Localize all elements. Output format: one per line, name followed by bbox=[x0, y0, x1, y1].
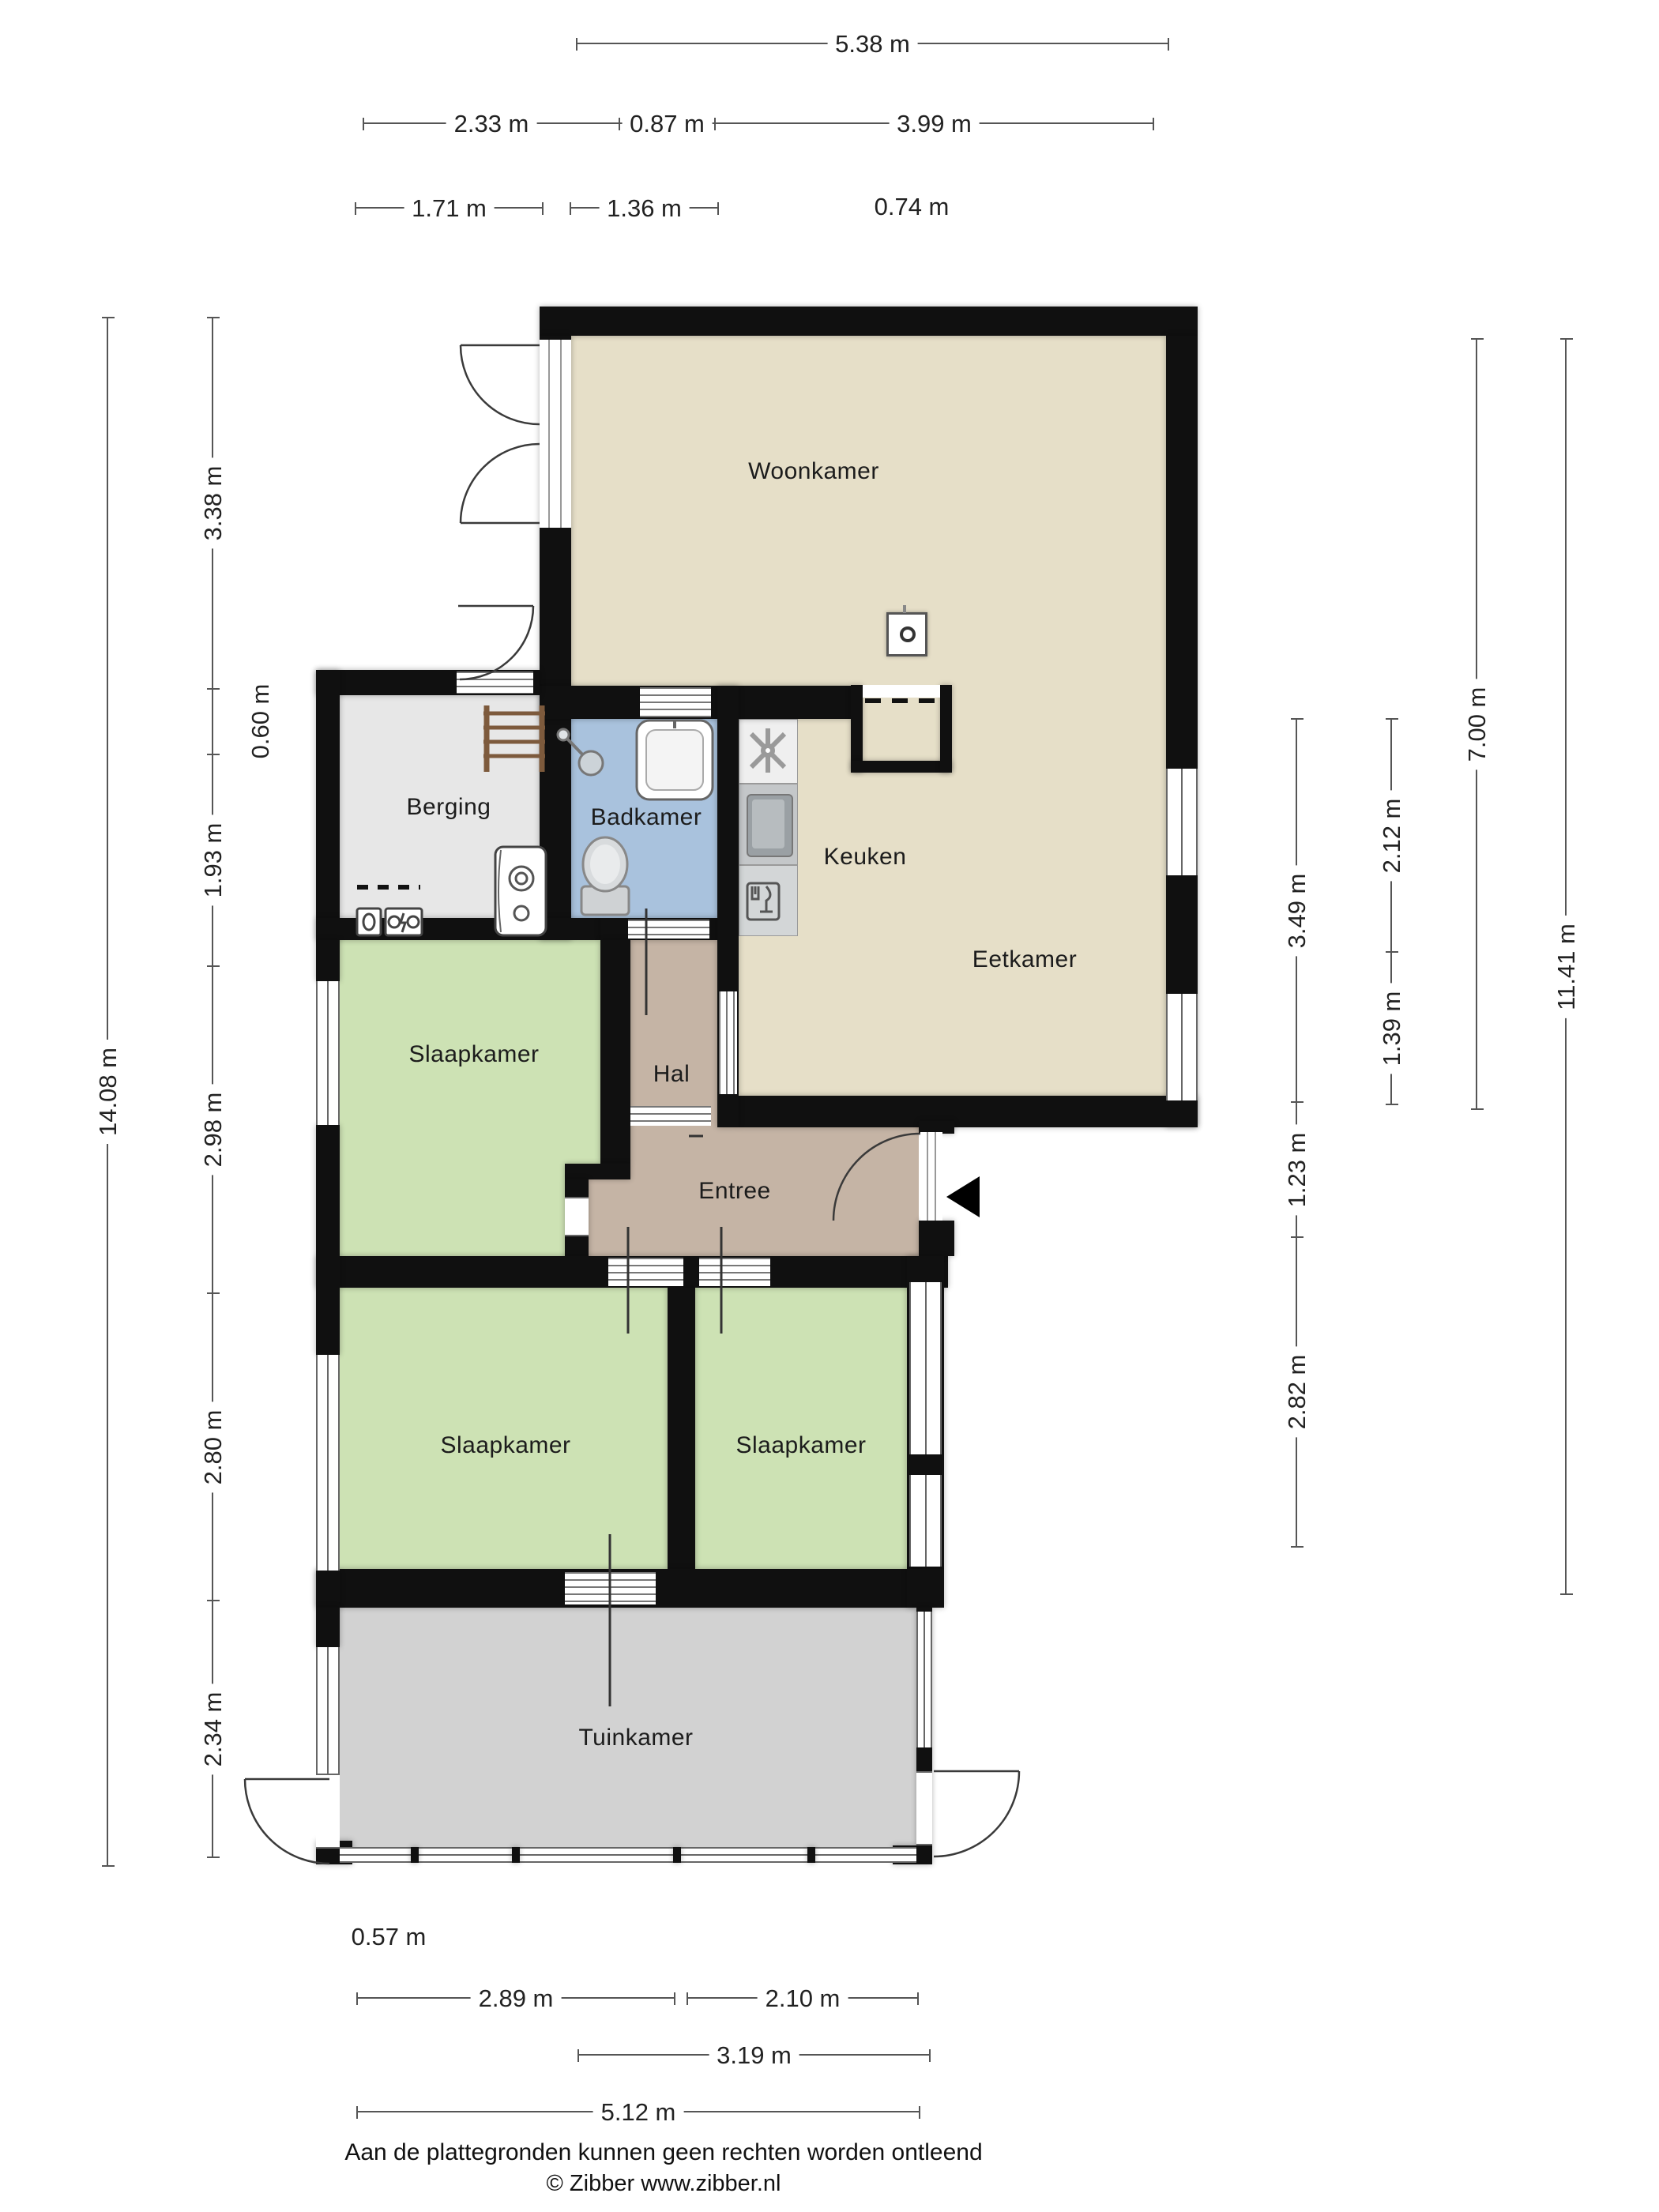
window-tuin-south-band bbox=[340, 1847, 916, 1863]
dim-label: 3.49 m bbox=[1283, 865, 1311, 956]
wall-sk-divider bbox=[668, 1288, 695, 1569]
dim-bottom-210: 2.10 m bbox=[687, 1997, 918, 1999]
dim-right-700: 7.00 m bbox=[1476, 339, 1477, 1109]
room-entree-floor bbox=[630, 1126, 919, 1256]
window-sk1-west bbox=[316, 981, 340, 1125]
french-doors-frame bbox=[540, 340, 571, 528]
dim-label: 2.82 m bbox=[1283, 1347, 1311, 1438]
dim-bottom-057: 0.57 m bbox=[352, 1923, 427, 1951]
door-tuin-west-gap bbox=[316, 1774, 340, 1849]
dim-right-212: 2.12 m bbox=[1390, 719, 1392, 952]
wall-north bbox=[540, 307, 1198, 336]
label-slaapkamer2: Slaapkamer bbox=[440, 1432, 570, 1459]
wall-south-dining bbox=[739, 1096, 1198, 1127]
wall-west-sk1-upper bbox=[316, 940, 340, 981]
dim-label: 1.23 m bbox=[1283, 1124, 1311, 1215]
door-sk1-entree bbox=[565, 1197, 589, 1236]
door-tuin-east-gap bbox=[916, 1771, 932, 1845]
dim-label: 1.93 m bbox=[199, 815, 228, 906]
label-entree: Entree bbox=[698, 1178, 770, 1205]
mullion-4 bbox=[807, 1847, 815, 1863]
dim-top-538: 5.38 m bbox=[577, 43, 1168, 44]
berging-door-icon bbox=[458, 606, 533, 679]
wall-tuin-west-pier-top bbox=[316, 1608, 340, 1647]
room-slaapkamer1-floor-lower bbox=[340, 1164, 565, 1256]
dim-top-171: 1.71 m bbox=[355, 207, 543, 209]
window-sk2-west bbox=[316, 1355, 340, 1571]
room-slaapkamer2-floor bbox=[340, 1288, 668, 1569]
dim-right-349: 3.49 m bbox=[1296, 719, 1297, 1102]
dim-top-136: 1.36 m bbox=[570, 207, 718, 209]
dim-label: 2.89 m bbox=[471, 1984, 562, 2013]
dim-left-060: 0.60 m bbox=[246, 684, 275, 759]
window-sk3-east-upper bbox=[909, 1282, 942, 1454]
opening-hal-keuken bbox=[719, 991, 737, 1094]
wall-slaapkamer1-east bbox=[600, 940, 630, 1164]
door-badkamer-threshold bbox=[628, 920, 709, 939]
dim-label: 2.33 m bbox=[446, 110, 537, 138]
dim-label: 7.00 m bbox=[1463, 679, 1492, 769]
front-door-frame bbox=[920, 1132, 942, 1221]
window-east-keuken bbox=[1166, 769, 1198, 875]
dim-label: 0.87 m bbox=[622, 110, 713, 138]
label-tuinkamer: Tuinkamer bbox=[578, 1725, 693, 1751]
dim-left-338: 3.38 m bbox=[212, 318, 213, 689]
dim-top-087: 0.87 m bbox=[619, 122, 715, 124]
wall-closet-right bbox=[940, 685, 952, 773]
label-badkamer: Badkamer bbox=[591, 804, 702, 831]
wall-west-sk2-lower bbox=[316, 1571, 340, 1608]
label-hal: Hal bbox=[653, 1061, 690, 1088]
door-slaapkamer2-threshold bbox=[608, 1258, 683, 1286]
tuin-east-door-icon bbox=[934, 1771, 1019, 1856]
dim-label: 2.12 m bbox=[1378, 790, 1406, 881]
dim-left-298: 2.98 m bbox=[212, 966, 213, 1293]
room-slaapkamer3-floor bbox=[695, 1288, 907, 1569]
room-hal-floor bbox=[630, 940, 717, 1126]
hatch-badkamer-north bbox=[640, 687, 711, 717]
door-tuinkamer-threshold bbox=[565, 1572, 656, 1604]
wall-sk3-south-corner bbox=[907, 1569, 944, 1608]
mullion-1 bbox=[411, 1847, 419, 1863]
wall-west-sk1-lower bbox=[316, 1125, 340, 1355]
wall-slaapkamer1-jog bbox=[565, 1164, 630, 1179]
window-sk3-east-lower bbox=[909, 1475, 942, 1567]
window-tuin-east bbox=[916, 1612, 932, 1747]
dim-label: 3.19 m bbox=[709, 2041, 799, 2070]
kitchen-sink-basin bbox=[747, 794, 793, 857]
kitchen-dishwasher-unit bbox=[739, 865, 798, 936]
dim-right-123: 1.23 m bbox=[1296, 1102, 1297, 1237]
dim-label: 1.36 m bbox=[599, 194, 690, 223]
dim-left-280: 2.80 m bbox=[212, 1293, 213, 1601]
closet-top-band bbox=[863, 685, 940, 698]
dim-label: 11.41 m bbox=[1552, 916, 1581, 1018]
label-slaapkamer1: Slaapkamer bbox=[408, 1041, 539, 1068]
label-woonkamer: Woonkamer bbox=[748, 458, 879, 485]
wood-stove bbox=[886, 612, 927, 656]
footer-copyright: © Zibber www.zibber.nl bbox=[547, 2171, 781, 2197]
dim-right-282: 2.82 m bbox=[1296, 1237, 1297, 1547]
wall-berging-south bbox=[316, 918, 600, 940]
wall-closet-left bbox=[851, 685, 863, 773]
door-hal-entree-threshold bbox=[630, 1106, 711, 1126]
entrance-arrow-icon bbox=[946, 1176, 980, 1217]
label-berging: Berging bbox=[407, 794, 491, 821]
mullion-3 bbox=[673, 1847, 681, 1863]
wall-berging-west bbox=[316, 670, 340, 940]
label-slaapkamer3: Slaapkamer bbox=[735, 1432, 866, 1459]
dim-label: 2.80 m bbox=[199, 1401, 228, 1492]
room-entree-floor-west bbox=[589, 1179, 630, 1256]
wall-closet-bottom bbox=[851, 761, 952, 773]
dim-bottom-512: 5.12 m bbox=[357, 2111, 920, 2112]
window-tuin-west bbox=[316, 1647, 340, 1774]
dim-left-1408: 14.08 m bbox=[107, 318, 108, 1866]
dim-top-233: 2.33 m bbox=[363, 122, 619, 124]
wall-entree-east-lower bbox=[919, 1221, 954, 1256]
dim-label: 2.10 m bbox=[758, 1984, 848, 2013]
dim-label: 3.99 m bbox=[889, 110, 980, 138]
dim-bottom-289: 2.89 m bbox=[357, 1997, 675, 1999]
dim-label: 1.71 m bbox=[404, 194, 495, 223]
dim-label: 3.38 m bbox=[199, 458, 228, 549]
floorplan-canvas: Woonkamer Keuken Eetkamer Badkamer Bergi… bbox=[0, 0, 1659, 2212]
door-slaapkamer3-threshold bbox=[699, 1258, 770, 1286]
french-doors-icon bbox=[461, 345, 540, 523]
dim-top-074: 0.74 m bbox=[875, 193, 950, 221]
door-berging-north-threshold bbox=[457, 671, 533, 694]
footer-disclaimer: Aan de plattegronden kunnen geen rechten… bbox=[344, 2139, 982, 2166]
window-east-eetkamer bbox=[1166, 994, 1198, 1100]
kitchen-extractor-unit bbox=[739, 719, 798, 784]
dim-top-399: 3.99 m bbox=[715, 122, 1153, 124]
dim-label: 2.98 m bbox=[199, 1085, 228, 1176]
dim-left-234: 2.34 m bbox=[212, 1601, 213, 1857]
stove-ring-icon bbox=[900, 626, 916, 642]
label-keuken: Keuken bbox=[824, 844, 907, 871]
dim-right-139: 1.39 m bbox=[1390, 952, 1392, 1104]
dim-right-1141: 11.41 m bbox=[1565, 339, 1567, 1594]
dim-label: 14.08 m bbox=[94, 1040, 122, 1144]
dim-bottom-319: 3.19 m bbox=[578, 2054, 930, 2056]
dim-left-060seg bbox=[212, 689, 213, 754]
dim-label: 2.34 m bbox=[199, 1683, 228, 1774]
dim-label: 5.38 m bbox=[827, 30, 918, 58]
label-eetkamer: Eetkamer bbox=[972, 946, 1077, 973]
mullion-2 bbox=[512, 1847, 520, 1863]
dim-label: 5.12 m bbox=[593, 2098, 684, 2127]
dim-label: 1.39 m bbox=[1378, 983, 1406, 1074]
dim-left-193: 1.93 m bbox=[212, 754, 213, 966]
